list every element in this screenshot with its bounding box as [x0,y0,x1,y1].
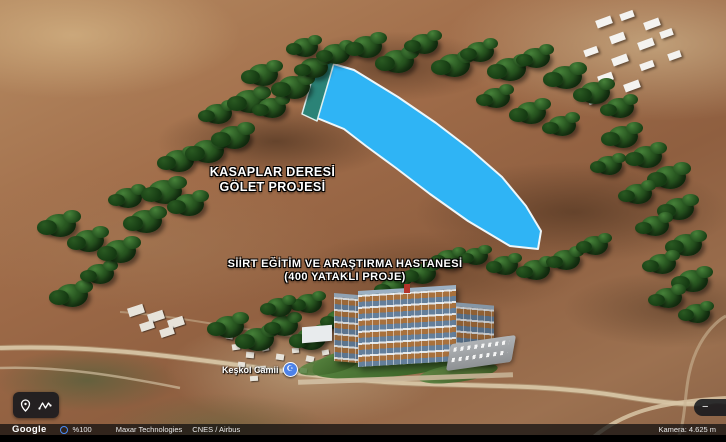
tree-cluster [466,42,494,62]
tree-cluster [248,64,278,86]
hospital-annex [302,325,332,344]
pond-project-label-line2: GÖLET PROJESİ [150,180,395,195]
tree-cluster [648,254,676,274]
tree-cluster [174,194,204,216]
tree-cluster [130,210,162,233]
imagery-loading-ring-icon [60,426,68,434]
placemark-tool-icon[interactable] [20,399,31,412]
tree-cluster [582,236,608,255]
imagery-load-percent: %100 [73,425,92,434]
poi-keskol-camii[interactable]: Keşkol Camii ☪ [222,362,298,377]
tree-cluster [292,38,318,57]
hospital-roof-sign [404,284,410,293]
tree-cluster [352,36,382,58]
tree-cluster [218,126,250,149]
poi-label[interactable]: Keşkol Camii [222,365,279,375]
tree-cluster [641,216,669,236]
tree-cluster [258,98,286,118]
tree-cluster [86,264,114,284]
camera-altitude: Kamera: 4.625 m [658,425,716,434]
tree-cluster [114,188,142,208]
tree-cluster [596,156,622,175]
tree-cluster [492,256,518,275]
hospital-main-building [358,285,456,367]
hospital-render [298,284,513,390]
tree-cluster [580,82,610,104]
tree-cluster [278,76,310,99]
tree-cluster [516,102,546,124]
letterbox-bar [0,435,726,442]
hospital-project-label-line2: (400 YATAKLI PROJE) [205,271,485,284]
google-logo: Google [12,424,47,435]
tree-cluster [654,288,682,308]
tree-cluster [482,88,510,108]
map-tools-box [13,392,59,418]
parked-cars-row [453,340,509,352]
pond-project-label-line1: KASAPLAR DERESİ [150,165,395,180]
tree-cluster [522,48,550,68]
tree-cluster [632,146,662,168]
tree-cluster [266,298,292,317]
hospital-project-label-line1: SİİRT EĞİTİM VE ARAŞTIRMA HASTANESİ [205,258,485,271]
hospital-tower [334,293,358,363]
tree-cluster [270,316,298,336]
tree-cluster [410,34,438,54]
path-tool-icon[interactable] [38,400,52,411]
attribution-cnes-airbus: CNES / Airbus [192,425,240,434]
zoom-control: − + [694,399,726,416]
tree-cluster [654,166,686,189]
mosque-pin-icon[interactable]: ☪ [283,362,298,377]
tree-cluster [44,214,76,237]
status-bar: Google %100 Maxar Technologies CNES / Ai… [0,424,726,435]
tree-cluster [552,250,580,270]
hospital-project-label: SİİRT EĞİTİM VE ARAŞTIRMA HASTANESİ (400… [205,258,485,284]
attribution-maxar: Maxar Technologies [116,425,183,434]
parked-cars-row [451,350,507,362]
pond-project-label: KASAPLAR DERESİ GÖLET PROJESİ [150,165,395,195]
map-stage[interactable]: KASAPLAR DERESİ GÖLET PROJESİ SİİRT EĞİT… [0,0,726,442]
tree-cluster [624,184,652,204]
tree-cluster [382,50,414,73]
tree-cluster [606,98,634,118]
zoom-out-button[interactable]: − [702,402,708,413]
tree-cluster [104,240,136,263]
tree-cluster [548,116,576,136]
tree-cluster [550,66,582,89]
tree-cluster [684,304,710,323]
tree-cluster [608,126,638,148]
tree-cluster [56,284,88,307]
